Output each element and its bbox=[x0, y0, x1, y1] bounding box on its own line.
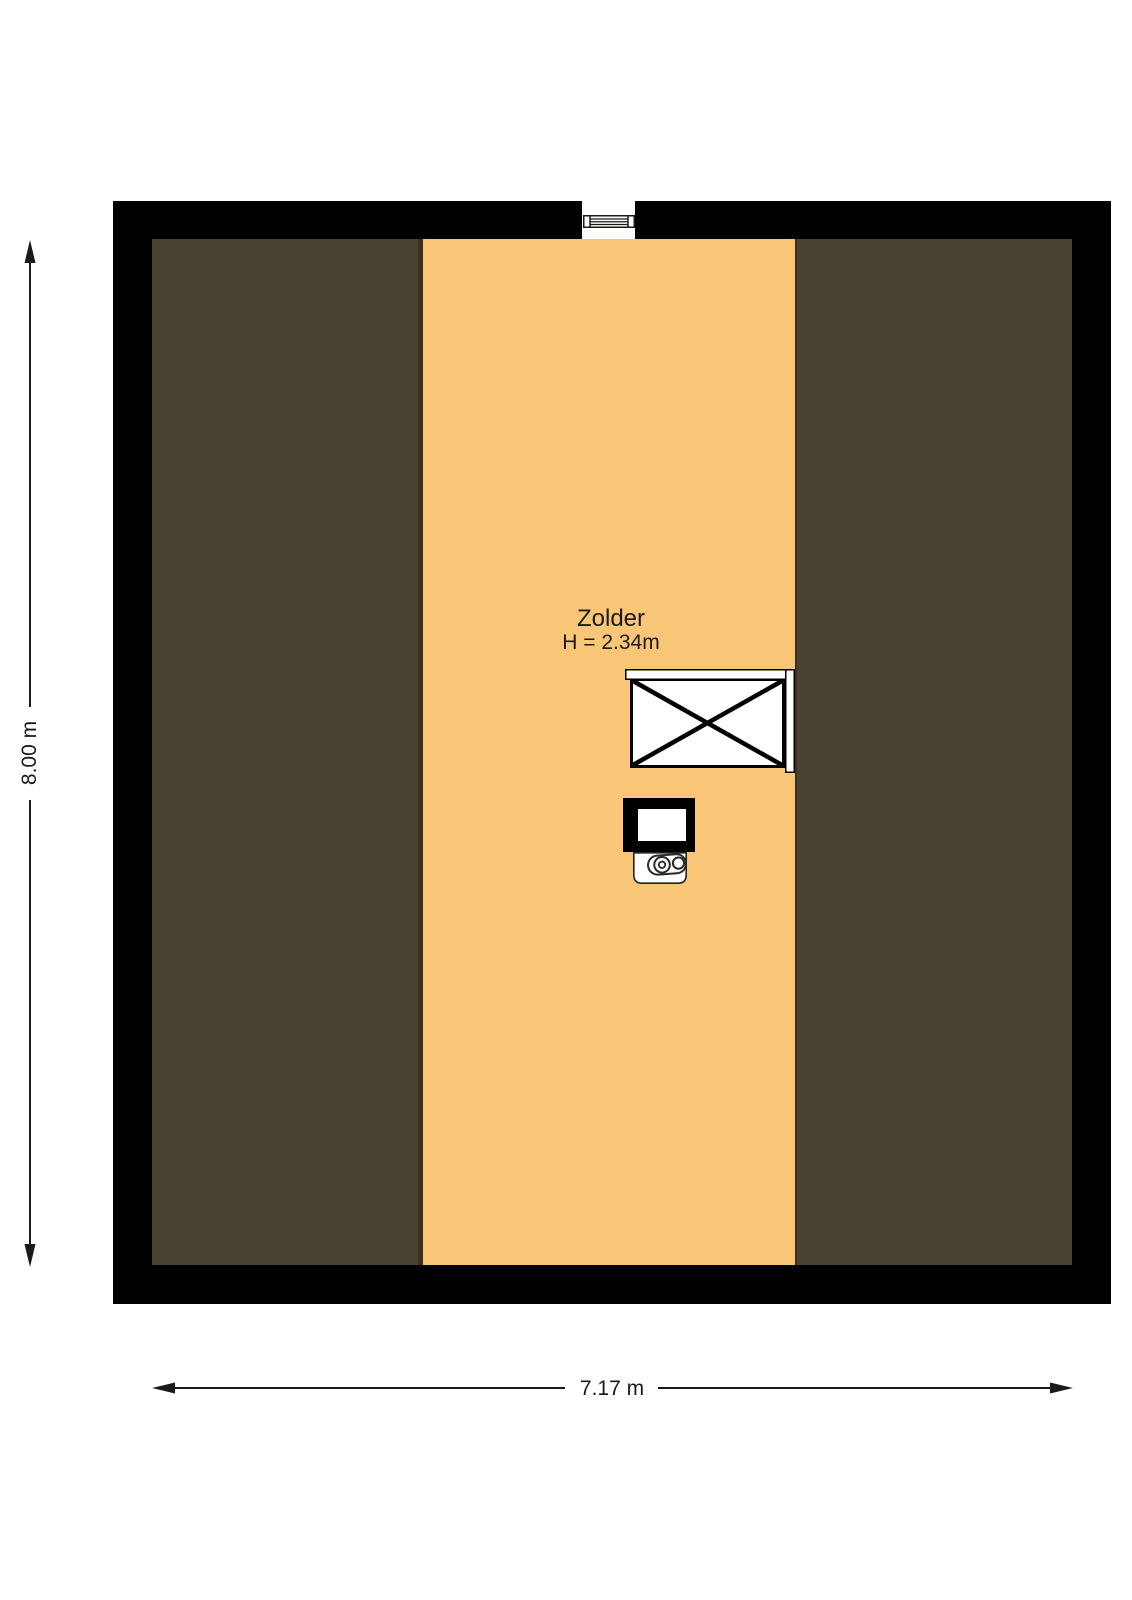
attic-floorplan bbox=[113, 201, 1111, 1304]
room-label: Zolder H = 2.34m bbox=[562, 606, 659, 653]
window-icon bbox=[579, 211, 639, 233]
stairs-icon bbox=[618, 664, 800, 776]
right-roof-slope-area bbox=[797, 239, 1072, 1265]
floorplan-canvas: Zolder H = 2.34m 8.00 m 7.17 m bbox=[0, 0, 1132, 1600]
left-roof-slope-area bbox=[152, 239, 418, 1265]
room-name: Zolder bbox=[562, 606, 659, 632]
room-height-value: H = 2.34m bbox=[562, 632, 659, 653]
vertical-dimension-label: 8.00 m bbox=[18, 721, 42, 785]
horizontal-dimension-label: 7.17 m bbox=[580, 1377, 644, 1401]
boiler-icon bbox=[618, 793, 702, 889]
